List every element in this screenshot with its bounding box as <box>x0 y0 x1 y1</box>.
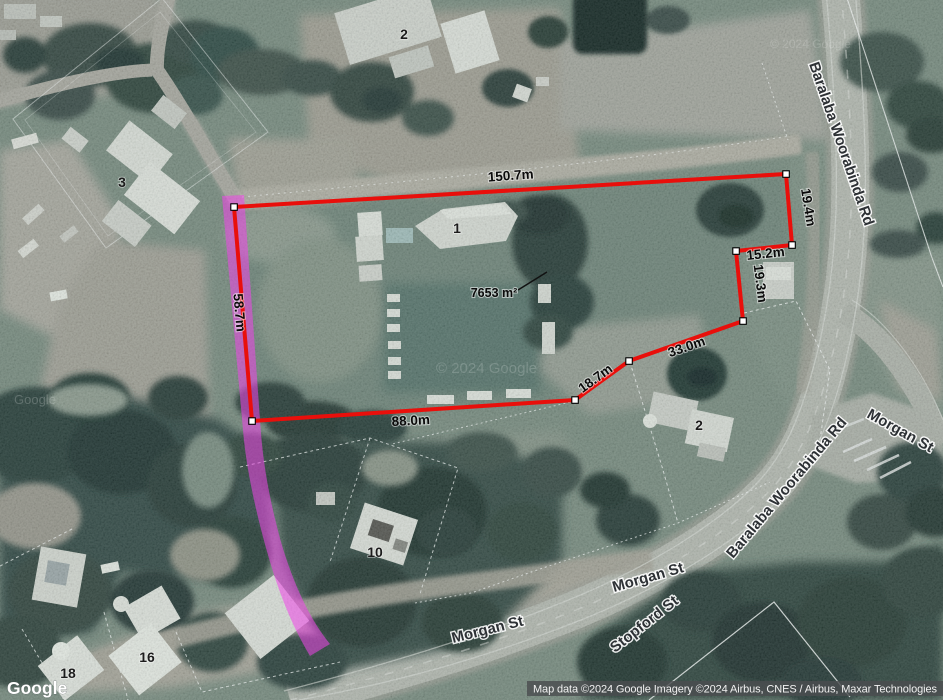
svg-text:2: 2 <box>695 417 703 433</box>
svg-text:Google: Google <box>7 678 68 698</box>
svg-text:3: 3 <box>118 174 126 190</box>
svg-text:1: 1 <box>453 220 461 236</box>
svg-text:7653 m²: 7653 m² <box>471 286 518 300</box>
svg-text:88.0m: 88.0m <box>391 412 430 429</box>
svg-text:10: 10 <box>367 544 383 560</box>
svg-text:Google: Google <box>14 392 56 407</box>
svg-text:150.7m: 150.7m <box>487 166 534 184</box>
svg-text:2: 2 <box>400 26 408 42</box>
svg-text:Map data ©2024 Google Imagery: Map data ©2024 Google Imagery ©2024 Airb… <box>533 684 938 696</box>
svg-text:16: 16 <box>139 649 155 665</box>
svg-text:© 2024 Google: © 2024 Google <box>436 360 537 377</box>
svg-text:© 2024 Google: © 2024 Google <box>770 37 851 51</box>
